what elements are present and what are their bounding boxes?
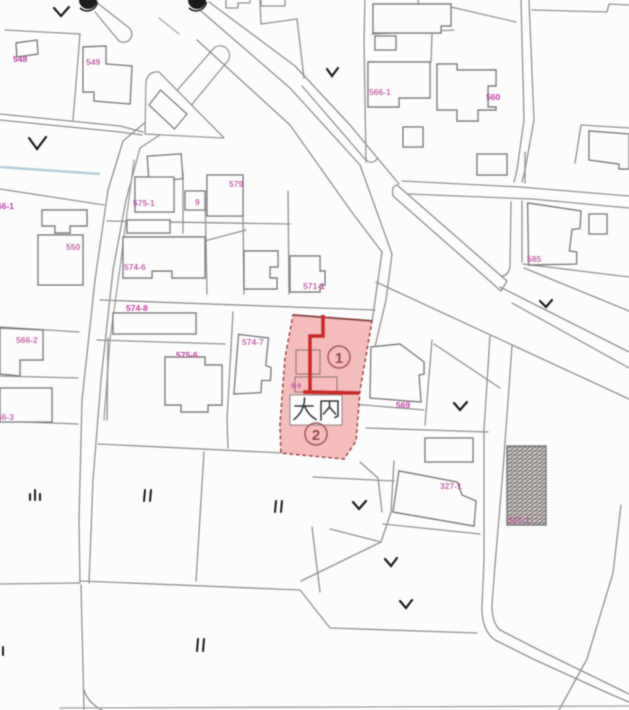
svg-text:566-2: 566-2 bbox=[16, 335, 38, 345]
svg-text:550: 550 bbox=[66, 242, 80, 252]
svg-text:560: 560 bbox=[486, 92, 500, 102]
svg-text:569: 569 bbox=[396, 400, 410, 410]
svg-text:574-7: 574-7 bbox=[242, 337, 264, 347]
svg-text:575-1: 575-1 bbox=[133, 198, 155, 208]
svg-text:5-9: 5-9 bbox=[291, 383, 301, 390]
svg-text:548: 548 bbox=[13, 54, 27, 64]
svg-text:327-1: 327-1 bbox=[440, 481, 462, 491]
svg-text:66-3: 66-3 bbox=[0, 412, 14, 422]
svg-text:2: 2 bbox=[312, 427, 320, 444]
svg-text:574-6: 574-6 bbox=[124, 262, 146, 272]
svg-text:527-1: 527-1 bbox=[508, 515, 530, 525]
svg-text:1: 1 bbox=[335, 350, 343, 367]
svg-text:579: 579 bbox=[229, 179, 243, 189]
svg-text:566-1: 566-1 bbox=[369, 87, 391, 97]
svg-text:585: 585 bbox=[527, 254, 541, 264]
svg-text:549: 549 bbox=[86, 57, 100, 67]
svg-text:574-8: 574-8 bbox=[126, 303, 148, 313]
svg-text:66-1: 66-1 bbox=[0, 201, 14, 211]
svg-text:9: 9 bbox=[195, 197, 200, 207]
svg-text:575-6: 575-6 bbox=[176, 350, 198, 360]
svg-text:571-1: 571-1 bbox=[303, 281, 325, 291]
